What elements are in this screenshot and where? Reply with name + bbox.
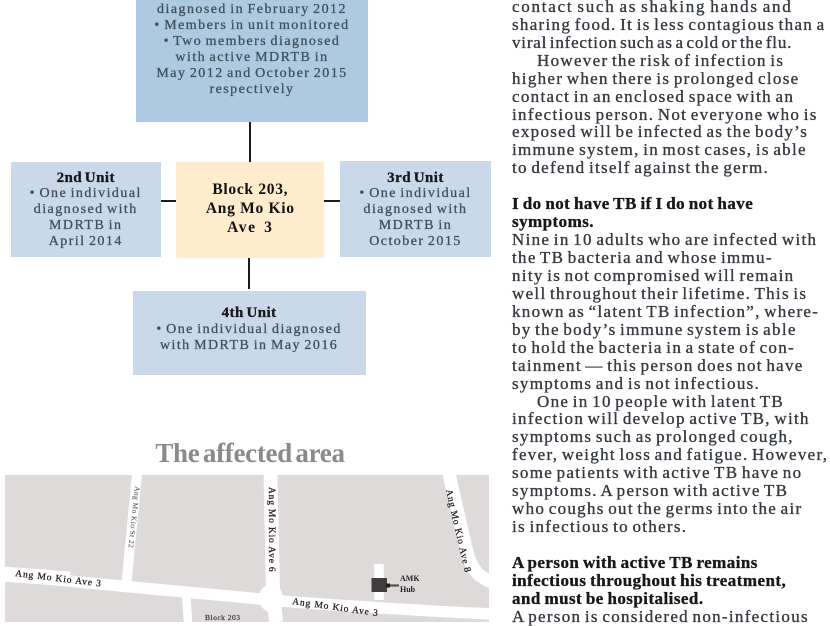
svg-text:Hub: Hub — [400, 585, 416, 594]
svg-text:AMK: AMK — [400, 574, 420, 583]
svg-text:Ang Mo Kio Ave 6: Ang Mo Kio Ave 6 — [266, 487, 276, 572]
svg-text:Block 203: Block 203 — [205, 613, 241, 622]
